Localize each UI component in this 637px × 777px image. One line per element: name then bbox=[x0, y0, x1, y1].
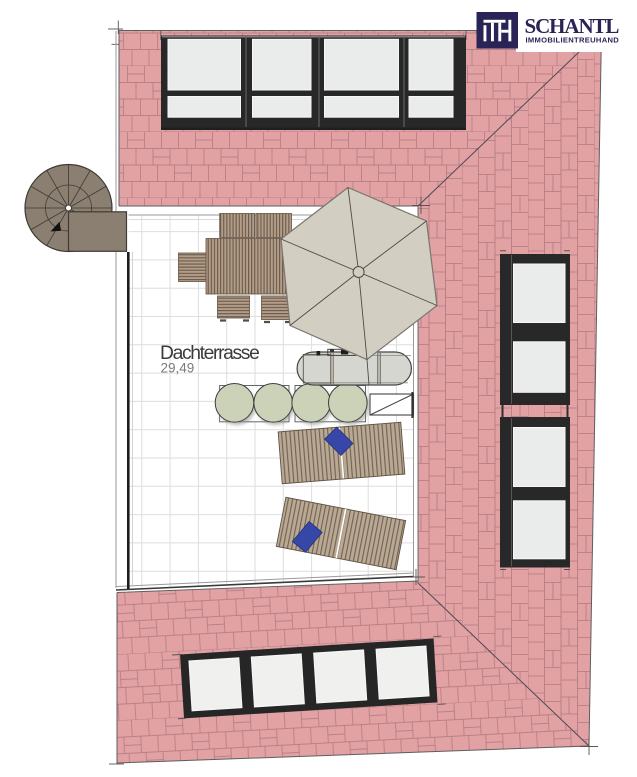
svg-text:IMMOBILIENTREUHAND: IMMOBILIENTREUHAND bbox=[526, 35, 620, 44]
svg-text:29,49: 29,49 bbox=[161, 361, 195, 376]
